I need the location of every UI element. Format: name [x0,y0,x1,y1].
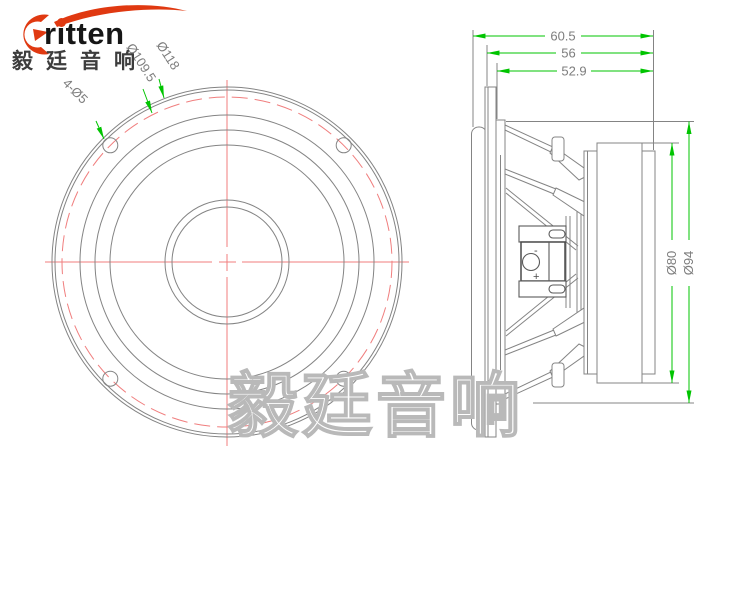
mounting-hole [103,371,118,386]
logo: ritten 毅廷音响 [0,0,210,84]
frame-ear-top [552,137,564,161]
lug-slot-top [549,230,565,238]
dimension-magnet-diameter: Ø80 [664,143,679,383]
drawing-svg: 4-Ø5 Ø109.5 Ø118 [0,0,750,600]
frame-ear-bottom [552,363,564,387]
technical-drawing-page: 4-Ø5 Ø109.5 Ø118 [0,0,750,600]
watermark-text: 毅廷音响 [228,364,524,447]
terminal-assembly: - + [519,226,566,297]
dim-frame-diameter: Ø94 [681,251,696,276]
brand-i-dot-icon [57,18,66,27]
dimension-overall-depth: 60.5 [473,29,653,44]
magnet [597,143,642,383]
dim-frame-depth: 56 [561,46,575,61]
dim-mounting-depth: 52.9 [561,64,586,79]
dimension-mounting-depth: 52.9 [497,64,653,79]
top-plate-washer [584,151,597,374]
back-plate [642,151,655,374]
lug-slot-bottom [549,285,565,293]
dimension-frame-depth: 56 [487,46,653,61]
dim-overall-depth: 60.5 [550,29,575,44]
dimension-frame-diameter: Ø94 [681,122,696,404]
terminal-minus-label: - [534,245,538,257]
brand-chinese-name: 毅廷音响 [12,45,148,75]
leader-mounting-holes [96,121,104,139]
dim-magnet-diameter: Ø80 [664,251,679,276]
